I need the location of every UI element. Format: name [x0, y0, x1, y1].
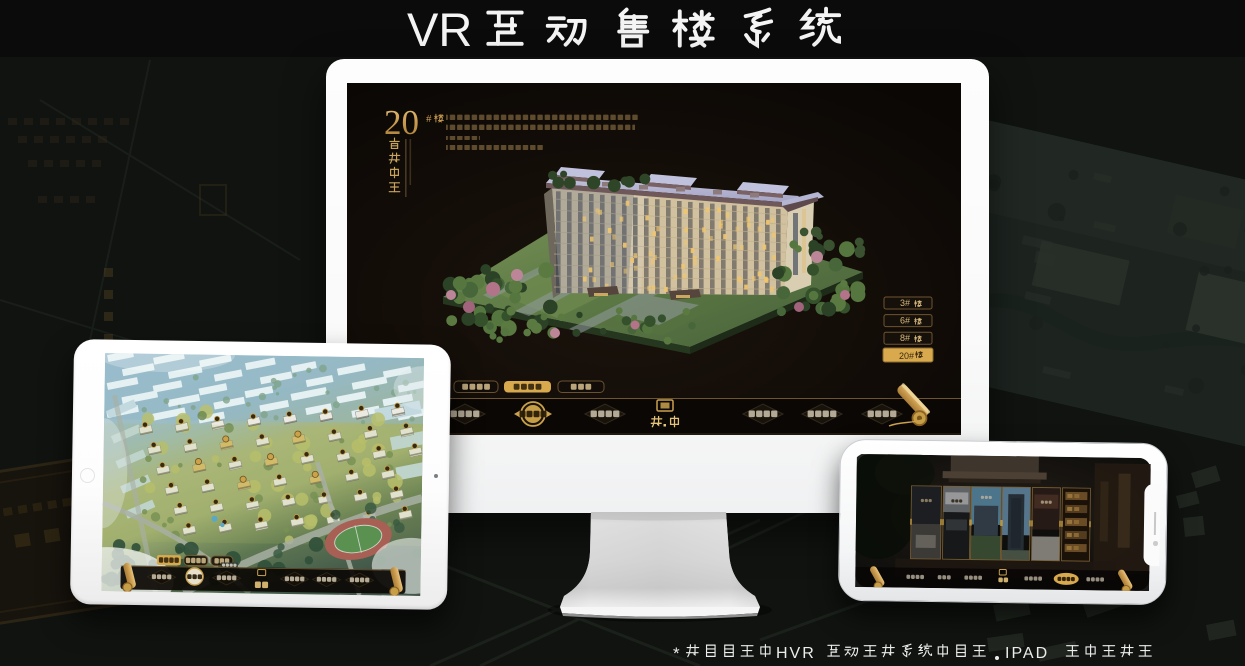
svg-text:20: 20	[384, 103, 419, 142]
svg-text:20#: 20#	[899, 351, 914, 361]
svg-text:IPAD: IPAD	[1005, 645, 1049, 662]
svg-text:6#: 6#	[900, 316, 910, 326]
svg-text:8#: 8#	[900, 333, 910, 343]
svg-text:#: #	[426, 113, 432, 125]
svg-text:*: *	[673, 644, 680, 663]
svg-text:3#: 3#	[900, 298, 910, 308]
svg-text:VR: VR	[407, 3, 472, 56]
svg-text:HVR: HVR	[776, 645, 816, 662]
